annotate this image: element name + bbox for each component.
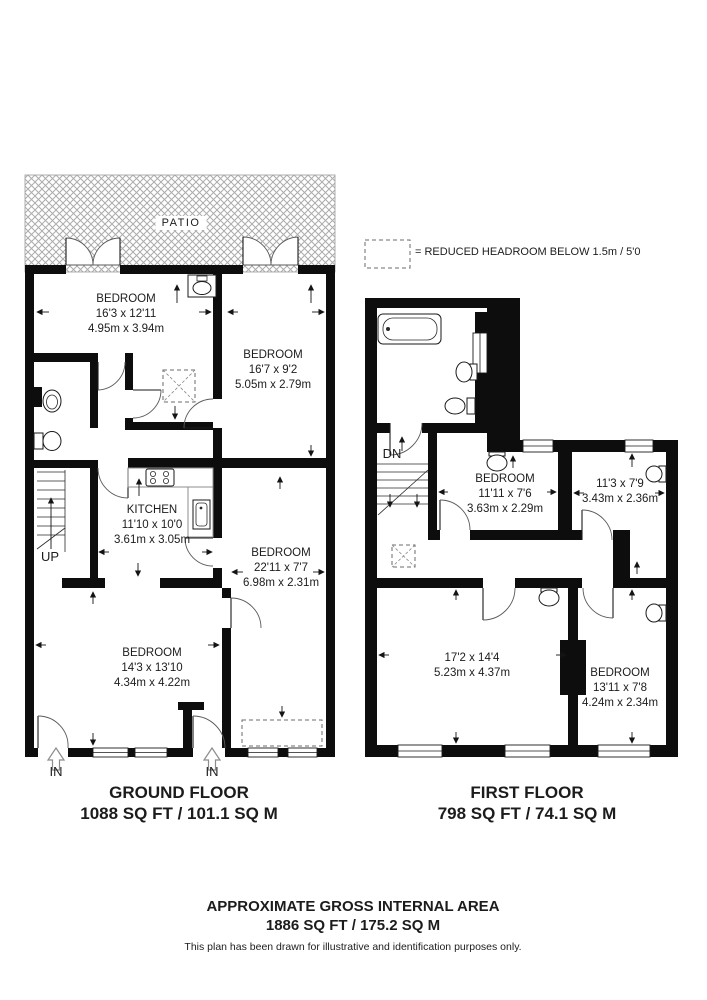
ground-floor-title: GROUND FLOOR 1088 SQ FT / 101.1 SQ M — [80, 782, 277, 824]
room-label-bedroom-gf-1: BEDROOM 16'3 x 12'11 4.95m x 3.94m — [88, 292, 164, 337]
room-dims-metric: 6.98m x 2.31m — [243, 576, 319, 591]
room-dims-metric: 5.05m x 2.79m — [235, 378, 311, 393]
footer-disclaimer: This plan has been drawn for illustrativ… — [184, 941, 521, 953]
stairs-down-label: DN — [383, 446, 402, 461]
stairs-up — [37, 470, 65, 552]
bathtub-icon — [378, 314, 441, 344]
room-name: BEDROOM — [582, 666, 658, 681]
footer-title: APPROXIMATE GROSS INTERNAL AREA — [184, 897, 521, 916]
floor-area: 798 SQ FT / 74.1 SQ M — [438, 803, 617, 824]
reduced-headroom-strip — [242, 720, 322, 746]
room-dims-imperial: 11'3 x 7'9 — [582, 477, 658, 492]
basin-icon — [456, 362, 477, 382]
room-dims-imperial: 13'11 x 7'8 — [582, 681, 658, 696]
room-name: KITCHEN — [114, 503, 190, 518]
room-name: BEDROOM — [88, 292, 164, 307]
floorplan-page: PATIO BEDROOM 16'3 x 12'11 4.95m x 3.94m… — [0, 0, 707, 1000]
toilet-icon — [445, 398, 475, 414]
toilet-icon — [34, 432, 61, 451]
reduced-headroom-box — [392, 545, 415, 567]
kitchen-sink-icon — [193, 500, 210, 529]
entrance-label: IN — [206, 764, 219, 779]
room-label-bedroom-gf-4: BEDROOM 14'3 x 13'10 4.34m x 4.22m — [114, 646, 190, 691]
room-dims-metric: 4.24m x 2.34m — [582, 696, 658, 711]
footer-area: 1886 SQ FT / 175.2 SQ M — [184, 916, 521, 935]
stairs-down — [377, 464, 428, 515]
room-dims-metric: 3.61m x 3.05m — [114, 533, 190, 548]
room-dims-metric: 3.43m x 2.36m — [582, 492, 658, 507]
room-dims-imperial: 16'7 x 9'2 — [235, 363, 311, 378]
room-dims-metric: 5.23m x 4.37m — [434, 666, 510, 681]
reduced-headroom-box — [163, 370, 195, 402]
room-name: BEDROOM — [235, 348, 311, 363]
stove-icon — [146, 469, 174, 486]
room-dims-imperial: 14'3 x 13'10 — [114, 661, 190, 676]
room-label-ff-3: 17'2 x 14'4 5.23m x 4.37m — [434, 651, 510, 681]
legend-text: = REDUCED HEADROOM BELOW 1.5m / 5'0 — [415, 246, 641, 258]
room-name: BEDROOM — [243, 546, 319, 561]
room-dims-imperial: 22'11 x 7'7 — [243, 561, 319, 576]
entrance-label: IN — [50, 764, 63, 779]
room-label-bedroom-ff-1: BEDROOM 11'11 x 7'6 3.63m x 2.29m — [467, 472, 543, 517]
room-dims-imperial: 11'10 x 10'0 — [114, 518, 190, 533]
room-dims-metric: 3.63m x 2.29m — [467, 502, 543, 517]
room-dims-metric: 4.95m x 3.94m — [88, 322, 164, 337]
bedroom-sink-icon — [487, 452, 507, 471]
floor-name: GROUND FLOOR — [80, 782, 277, 803]
bedroom-sink-icon — [539, 588, 559, 606]
room-name: BEDROOM — [114, 646, 190, 661]
room-dims-imperial: 17'2 x 14'4 — [434, 651, 510, 666]
first-floor-title: FIRST FLOOR 798 SQ FT / 74.1 SQ M — [438, 782, 617, 824]
room-dims-imperial: 16'3 x 12'11 — [88, 307, 164, 322]
room-name: BEDROOM — [467, 472, 543, 487]
bedroom-sink-icon — [646, 604, 666, 622]
floor-area: 1088 SQ FT / 101.1 SQ M — [80, 803, 277, 824]
room-dims-metric: 4.34m x 4.22m — [114, 676, 190, 691]
patio-label: PATIO — [156, 216, 207, 230]
room-label-bedroom-ff-4: BEDROOM 13'11 x 7'8 4.24m x 2.34m — [582, 666, 658, 711]
stairs-up-label: UP — [41, 549, 59, 564]
room-label-kitchen: KITCHEN 11'10 x 10'0 3.61m x 3.05m — [114, 503, 190, 548]
floor-name: FIRST FLOOR — [438, 782, 617, 803]
legend-reduced-headroom-box — [365, 240, 410, 268]
room-dims-imperial: 11'11 x 7'6 — [467, 487, 543, 502]
footer: APPROXIMATE GROSS INTERNAL AREA 1886 SQ … — [184, 897, 521, 953]
bedroom-sink-icon — [188, 275, 216, 297]
bathroom-sink-icon — [43, 390, 61, 412]
room-label-bedroom-gf-3: BEDROOM 22'11 x 7'7 6.98m x 2.31m — [243, 546, 319, 591]
room-label-ff-2: 11'3 x 7'9 3.43m x 2.36m — [582, 477, 658, 507]
room-label-bedroom-gf-2: BEDROOM 16'7 x 9'2 5.05m x 2.79m — [235, 348, 311, 393]
